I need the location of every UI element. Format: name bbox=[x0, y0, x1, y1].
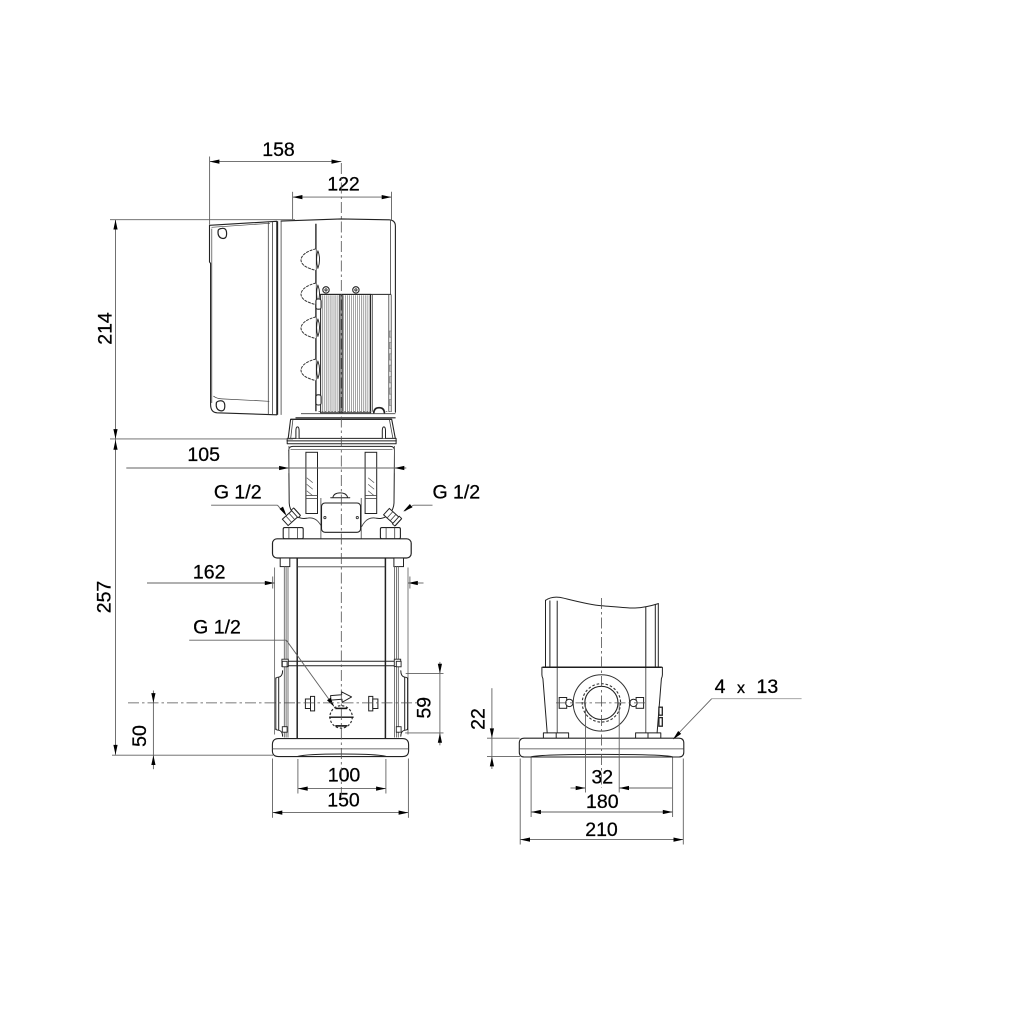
svg-text:162: 162 bbox=[193, 562, 226, 584]
svg-text:180: 180 bbox=[586, 791, 619, 813]
svg-text:G 1/2: G 1/2 bbox=[214, 481, 262, 503]
svg-text:G 1/2: G 1/2 bbox=[193, 617, 241, 639]
svg-text:150: 150 bbox=[327, 789, 360, 811]
svg-text:59: 59 bbox=[414, 697, 436, 719]
svg-text:257: 257 bbox=[94, 581, 116, 614]
svg-text:50: 50 bbox=[129, 725, 151, 747]
svg-text:158: 158 bbox=[262, 139, 295, 161]
svg-text:4: 4 bbox=[715, 676, 726, 698]
svg-text:G 1/2: G 1/2 bbox=[432, 481, 480, 503]
svg-text:122: 122 bbox=[327, 173, 360, 195]
svg-text:32: 32 bbox=[591, 767, 613, 789]
svg-text:214: 214 bbox=[95, 312, 117, 345]
svg-text:210: 210 bbox=[585, 819, 618, 841]
svg-text:x: x bbox=[737, 680, 745, 697]
svg-text:13: 13 bbox=[757, 676, 779, 698]
svg-text:100: 100 bbox=[328, 765, 361, 787]
svg-text:105: 105 bbox=[187, 444, 220, 466]
svg-text:22: 22 bbox=[468, 708, 490, 730]
